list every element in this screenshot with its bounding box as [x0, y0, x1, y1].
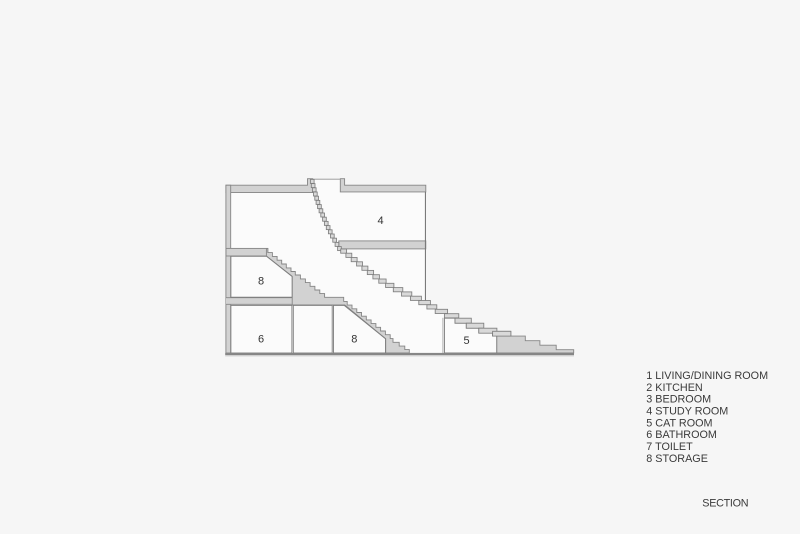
svg-text:5: 5	[463, 335, 469, 347]
svg-text:7 TOILET: 7 TOILET	[646, 441, 693, 453]
svg-text:6 BATHROOM: 6 BATHROOM	[646, 429, 717, 441]
svg-text:3 BEDROOM: 3 BEDROOM	[646, 394, 711, 406]
svg-text:6: 6	[258, 334, 264, 346]
svg-text:5 CAT ROOM: 5 CAT ROOM	[646, 417, 712, 429]
svg-text:2 KITCHEN: 2 KITCHEN	[646, 382, 702, 394]
svg-text:8 STORAGE: 8 STORAGE	[646, 453, 708, 465]
svg-text:SECTION: SECTION	[702, 497, 748, 509]
svg-text:8: 8	[351, 333, 357, 345]
svg-text:4 STUDY ROOM: 4 STUDY ROOM	[646, 406, 728, 418]
svg-text:4: 4	[377, 215, 383, 227]
svg-text:1 LIVING/DINING ROOM: 1 LIVING/DINING ROOM	[646, 370, 768, 382]
svg-text:8: 8	[258, 276, 264, 288]
